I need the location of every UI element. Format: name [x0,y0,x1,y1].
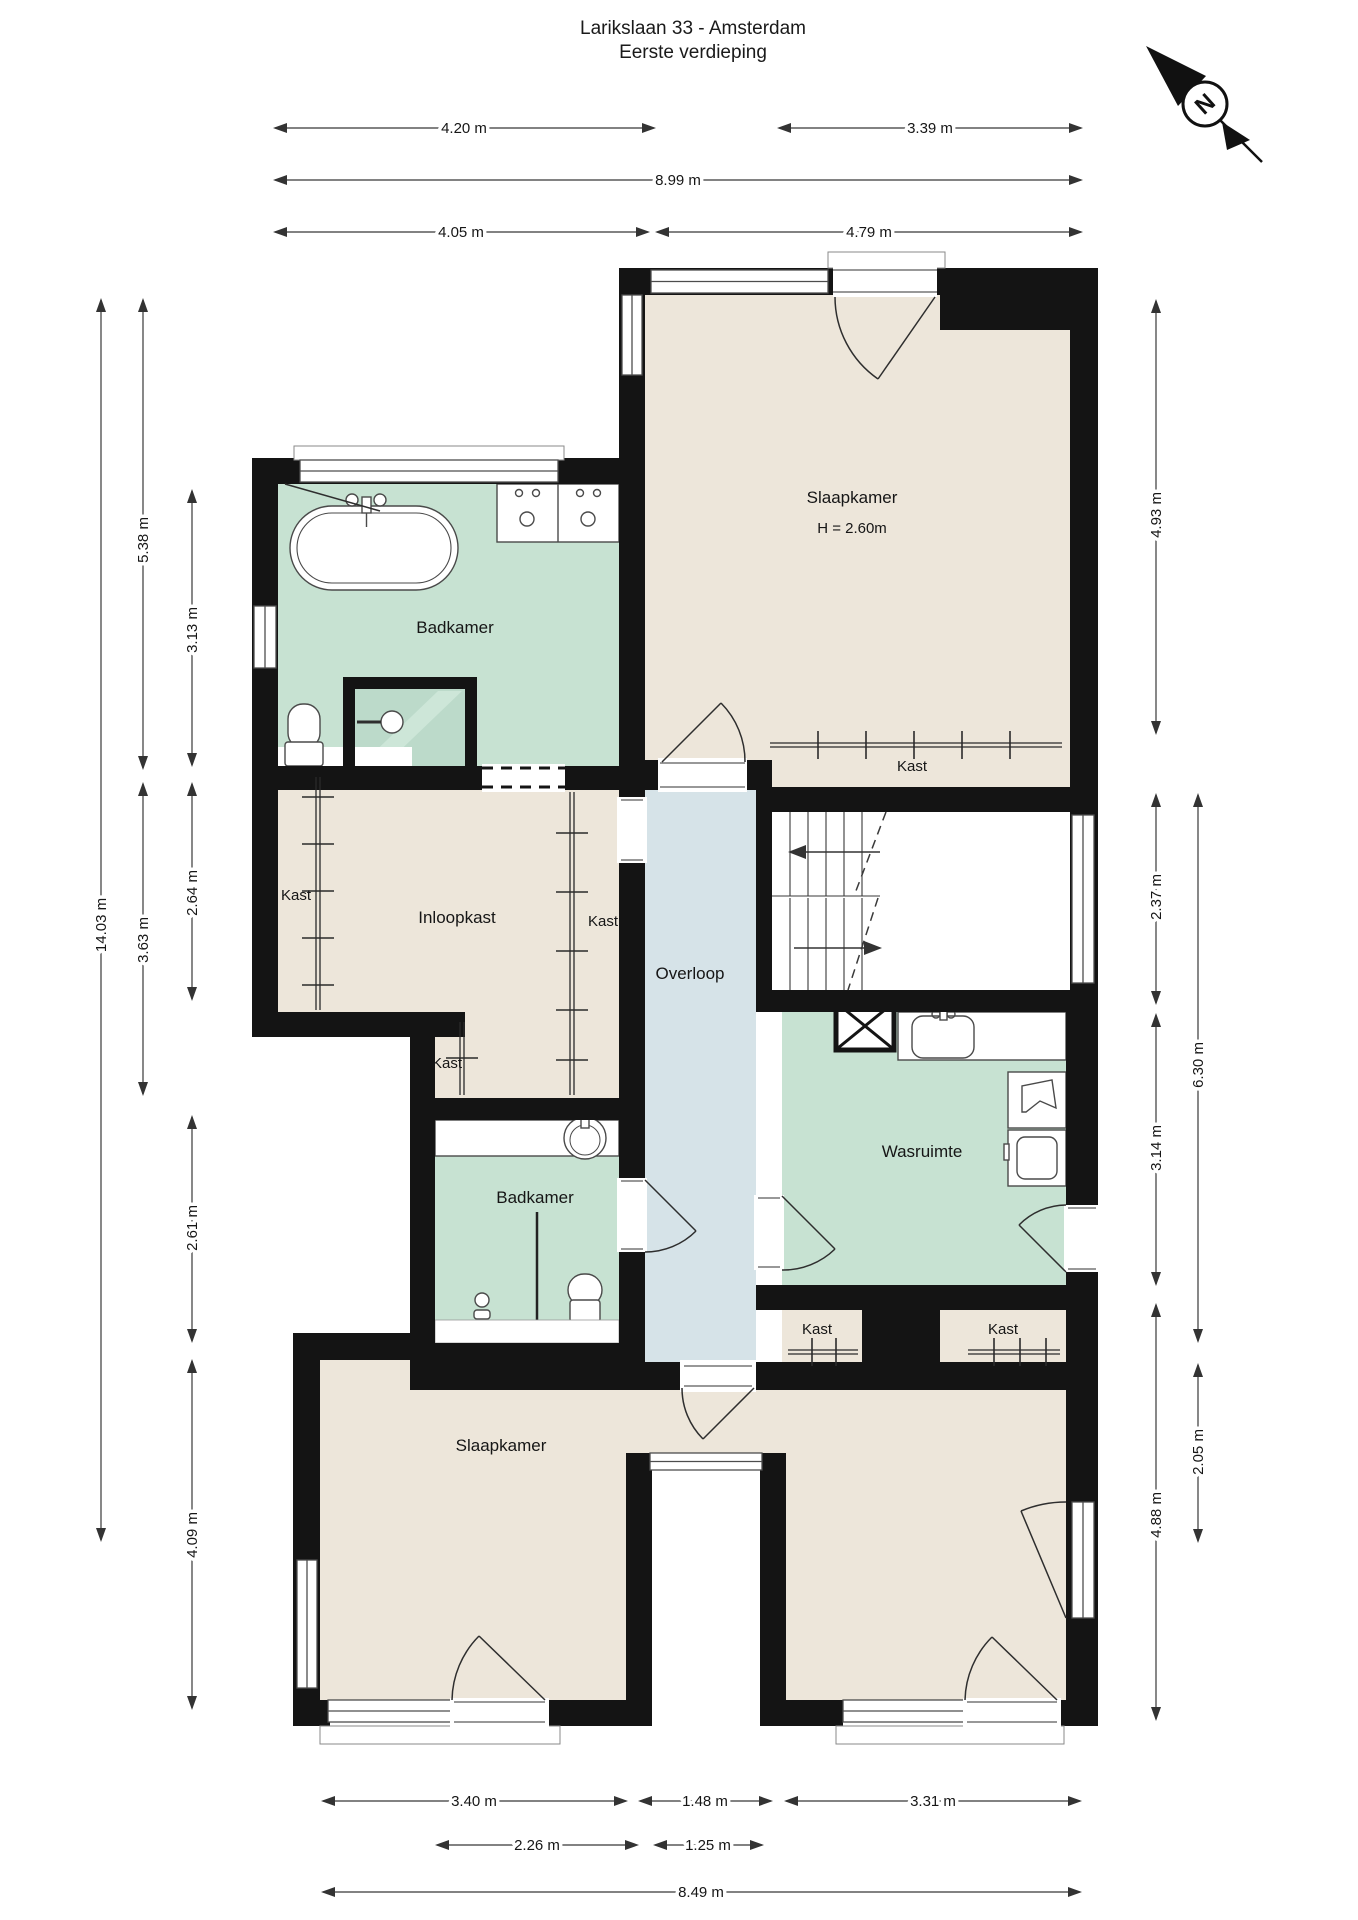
shower-mixer-icon [475,1293,489,1307]
dim-bottom-331: 3.31 m [910,1793,956,1810]
dim-bottom-226: 2.26 m [514,1837,560,1854]
dim-bottom-340: 3.40 m [451,1793,497,1810]
dim-right-488: 4.88 m [1148,1492,1165,1538]
shower-head-icon [381,711,403,733]
dim-left-363: 3.63 m [135,917,152,963]
dim-bottom-148: 1.48 m [682,1793,728,1810]
dim-right-493: 4.93 m [1148,492,1165,538]
compass-icon: N [1146,46,1262,162]
page-title: Larikslaan 33 - Amsterdam [580,18,806,39]
dim-left-1403: 14.03 m [93,898,110,952]
label-badkamer-top: Badkamer [416,618,494,637]
floor-plan-svg: Badkamer Slaapkamer H = 2.60m Kast Kast … [0,0,1358,1920]
laundry-sink-icon [912,1016,974,1058]
door-opening-wasruimte-right [1064,1205,1100,1272]
label-badkamer-bottom: Badkamer [496,1188,574,1207]
door-sill-top [828,252,945,268]
dim-left-264: 2.64 m [184,870,201,916]
stairwell [772,812,1070,990]
room-inloopkast [278,790,619,1012]
dim-bottom-125: 1.25 m [685,1837,731,1854]
dim-left-538: 5.38 m [135,517,152,563]
label-slaapkamer-bottom: Slaapkamer [456,1436,547,1455]
dim-left-313: 3.13 m [184,607,201,653]
dim-top-405: 4.05 m [438,224,484,241]
floor-plan-page: Badkamer Slaapkamer H = 2.60m Kast Kast … [0,0,1358,1920]
dim-bottom-849: 8.49 m [678,1884,724,1901]
label-kast-left: Kast [281,887,312,904]
dim-top-899: 8.99 m [655,172,701,189]
dim-top-479: 4.79 m [846,224,892,241]
room-slaapkamer-bottom-d [760,1390,1066,1700]
label-wasruimte: Wasruimte [882,1142,963,1161]
label-kast-bottom-right: Kast [988,1321,1019,1338]
label-kast-small: Kast [432,1055,463,1072]
door-opening-wasruimte-left [754,1195,784,1270]
title-block: Larikslaan 33 - Amsterdam Eerste verdiep… [580,18,806,63]
label-kast-mid: Kast [588,913,619,930]
shower-tray-band [435,1320,619,1343]
dim-right-314: 3.14 m [1148,1125,1165,1171]
label-ceiling-height: H = 2.60m [817,520,887,537]
dim-left-409: 4.09 m [184,1512,201,1558]
dim-top-339: 3.39 m [907,120,953,137]
room-slaapkamer-top [645,295,1070,787]
room-overloop [645,790,756,1362]
opening-overloop-inloopkast [617,797,647,863]
dim-top-420: 4.20 m [441,120,487,137]
sill-facade-right [836,1726,1064,1744]
label-inloopkast: Inloopkast [418,908,496,927]
dim-right-205: 2.05 m [1190,1429,1207,1475]
dim-right-630: 6.30 m [1190,1042,1207,1088]
label-kast-top: Kast [897,758,928,775]
label-slaapkamer-top: Slaapkamer [807,488,898,507]
room-slaapkamer-bottom-c [652,1390,760,1453]
door-opening-overloop-bottom [680,1360,756,1392]
dim-right-237: 2.37 m [1148,874,1165,920]
dim-left-261: 2.61 m [184,1205,201,1251]
laundry-basket-icon [1008,1072,1066,1128]
bathtub-icon [290,506,458,590]
label-overloop: Overloop [656,964,725,983]
door-opening-badkamer-bottom [617,1178,647,1252]
page-subtitle: Eerste verdieping [619,42,767,63]
label-kast-bottom-left: Kast [802,1321,833,1338]
window-sill [294,446,564,460]
sill-facade-left [320,1726,560,1744]
